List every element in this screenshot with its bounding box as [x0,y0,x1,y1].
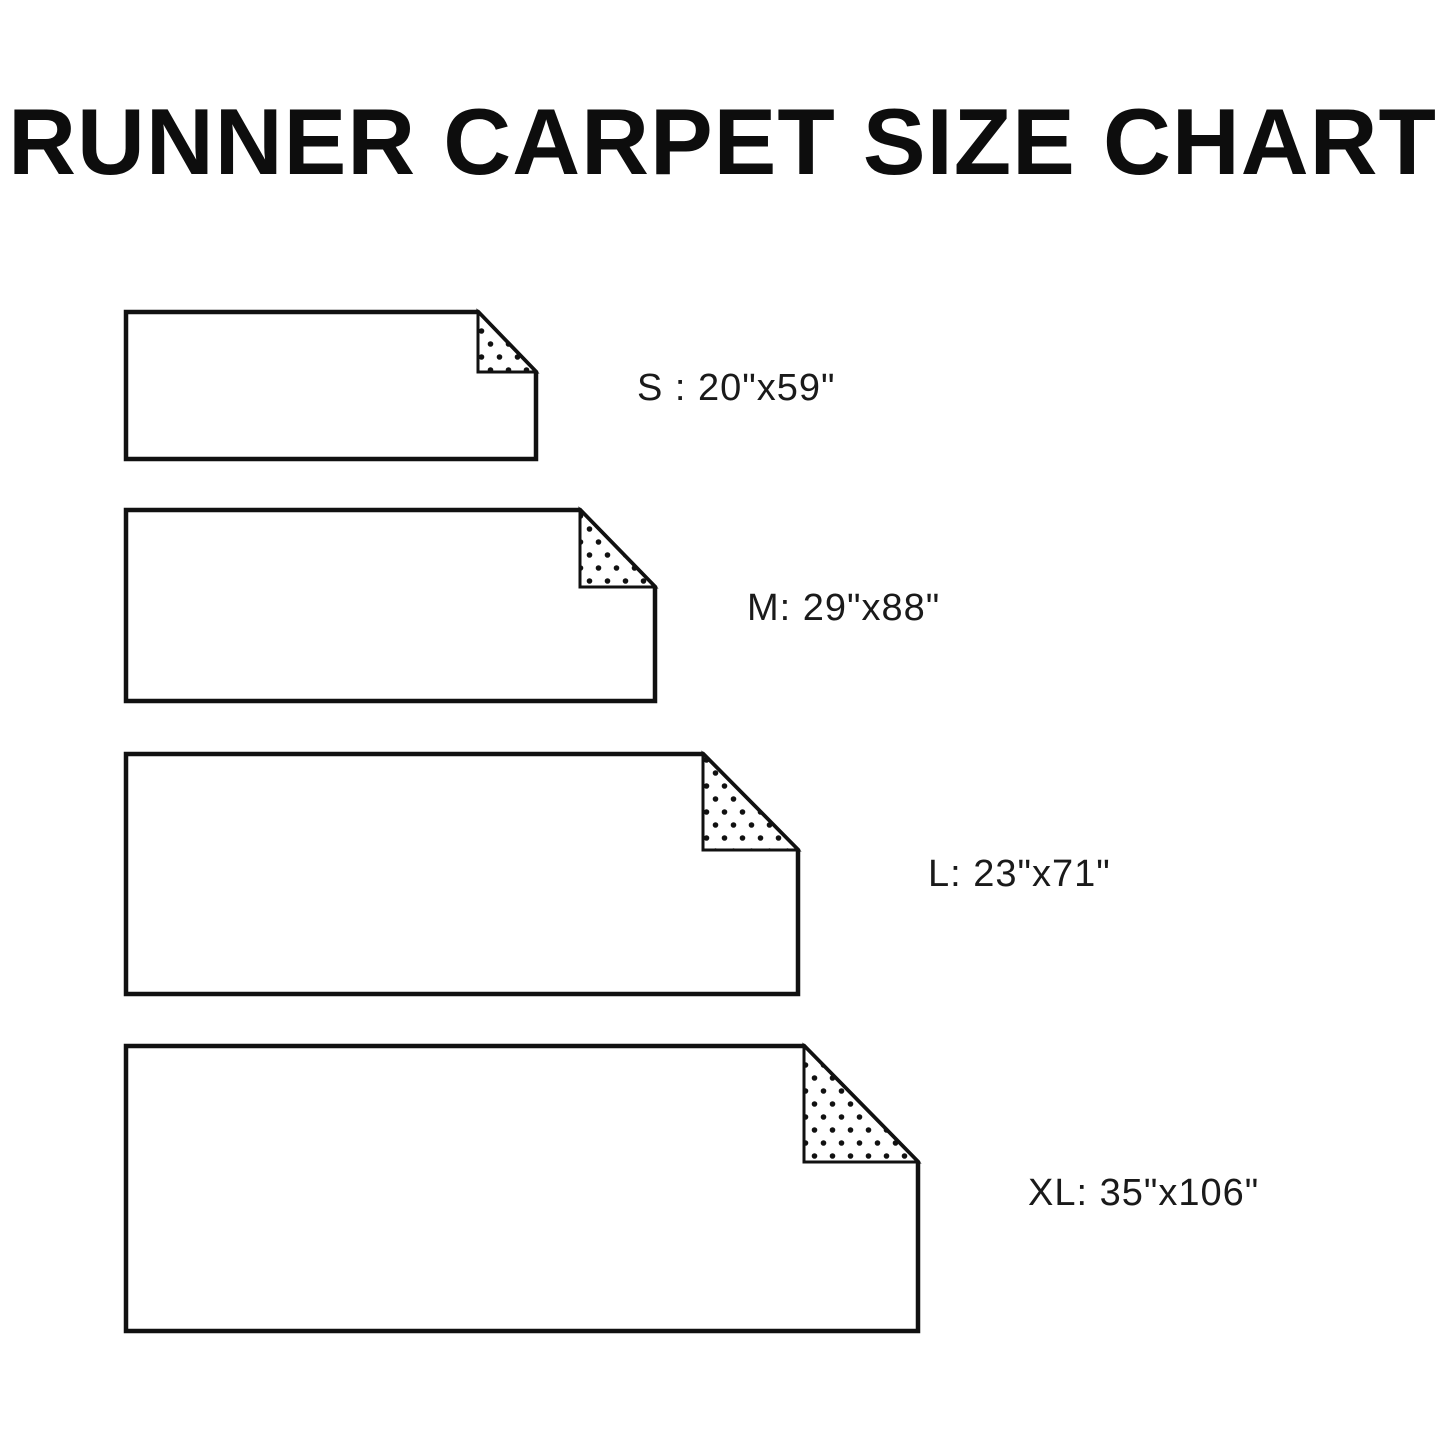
folded-corner-icon [580,510,655,587]
carpet-shape-s [122,308,540,463]
page-title: RUNNER CARPET SIZE CHART [0,88,1445,196]
folded-corner-icon [478,312,536,372]
carpet-outline [126,1046,918,1331]
size-label-xl: XL: 35"x106" [1028,1170,1259,1216]
folded-corner-icon [804,1046,918,1162]
folded-corner-icon [703,754,798,850]
runner-carpet-size-chart: RUNNER CARPET SIZE CHART S : 20"x59" M: … [0,0,1445,1445]
size-label-l: L: 23"x71" [928,851,1111,897]
carpet-outline [126,754,798,994]
carpet-outline [126,510,655,701]
size-label-m: M: 29"x88" [747,585,940,631]
carpet-shape-m [122,506,659,705]
carpet-shape-xl [122,1042,922,1335]
size-label-s: S : 20"x59" [637,365,836,411]
carpet-outline [126,312,536,459]
carpet-shape-l [122,750,802,998]
